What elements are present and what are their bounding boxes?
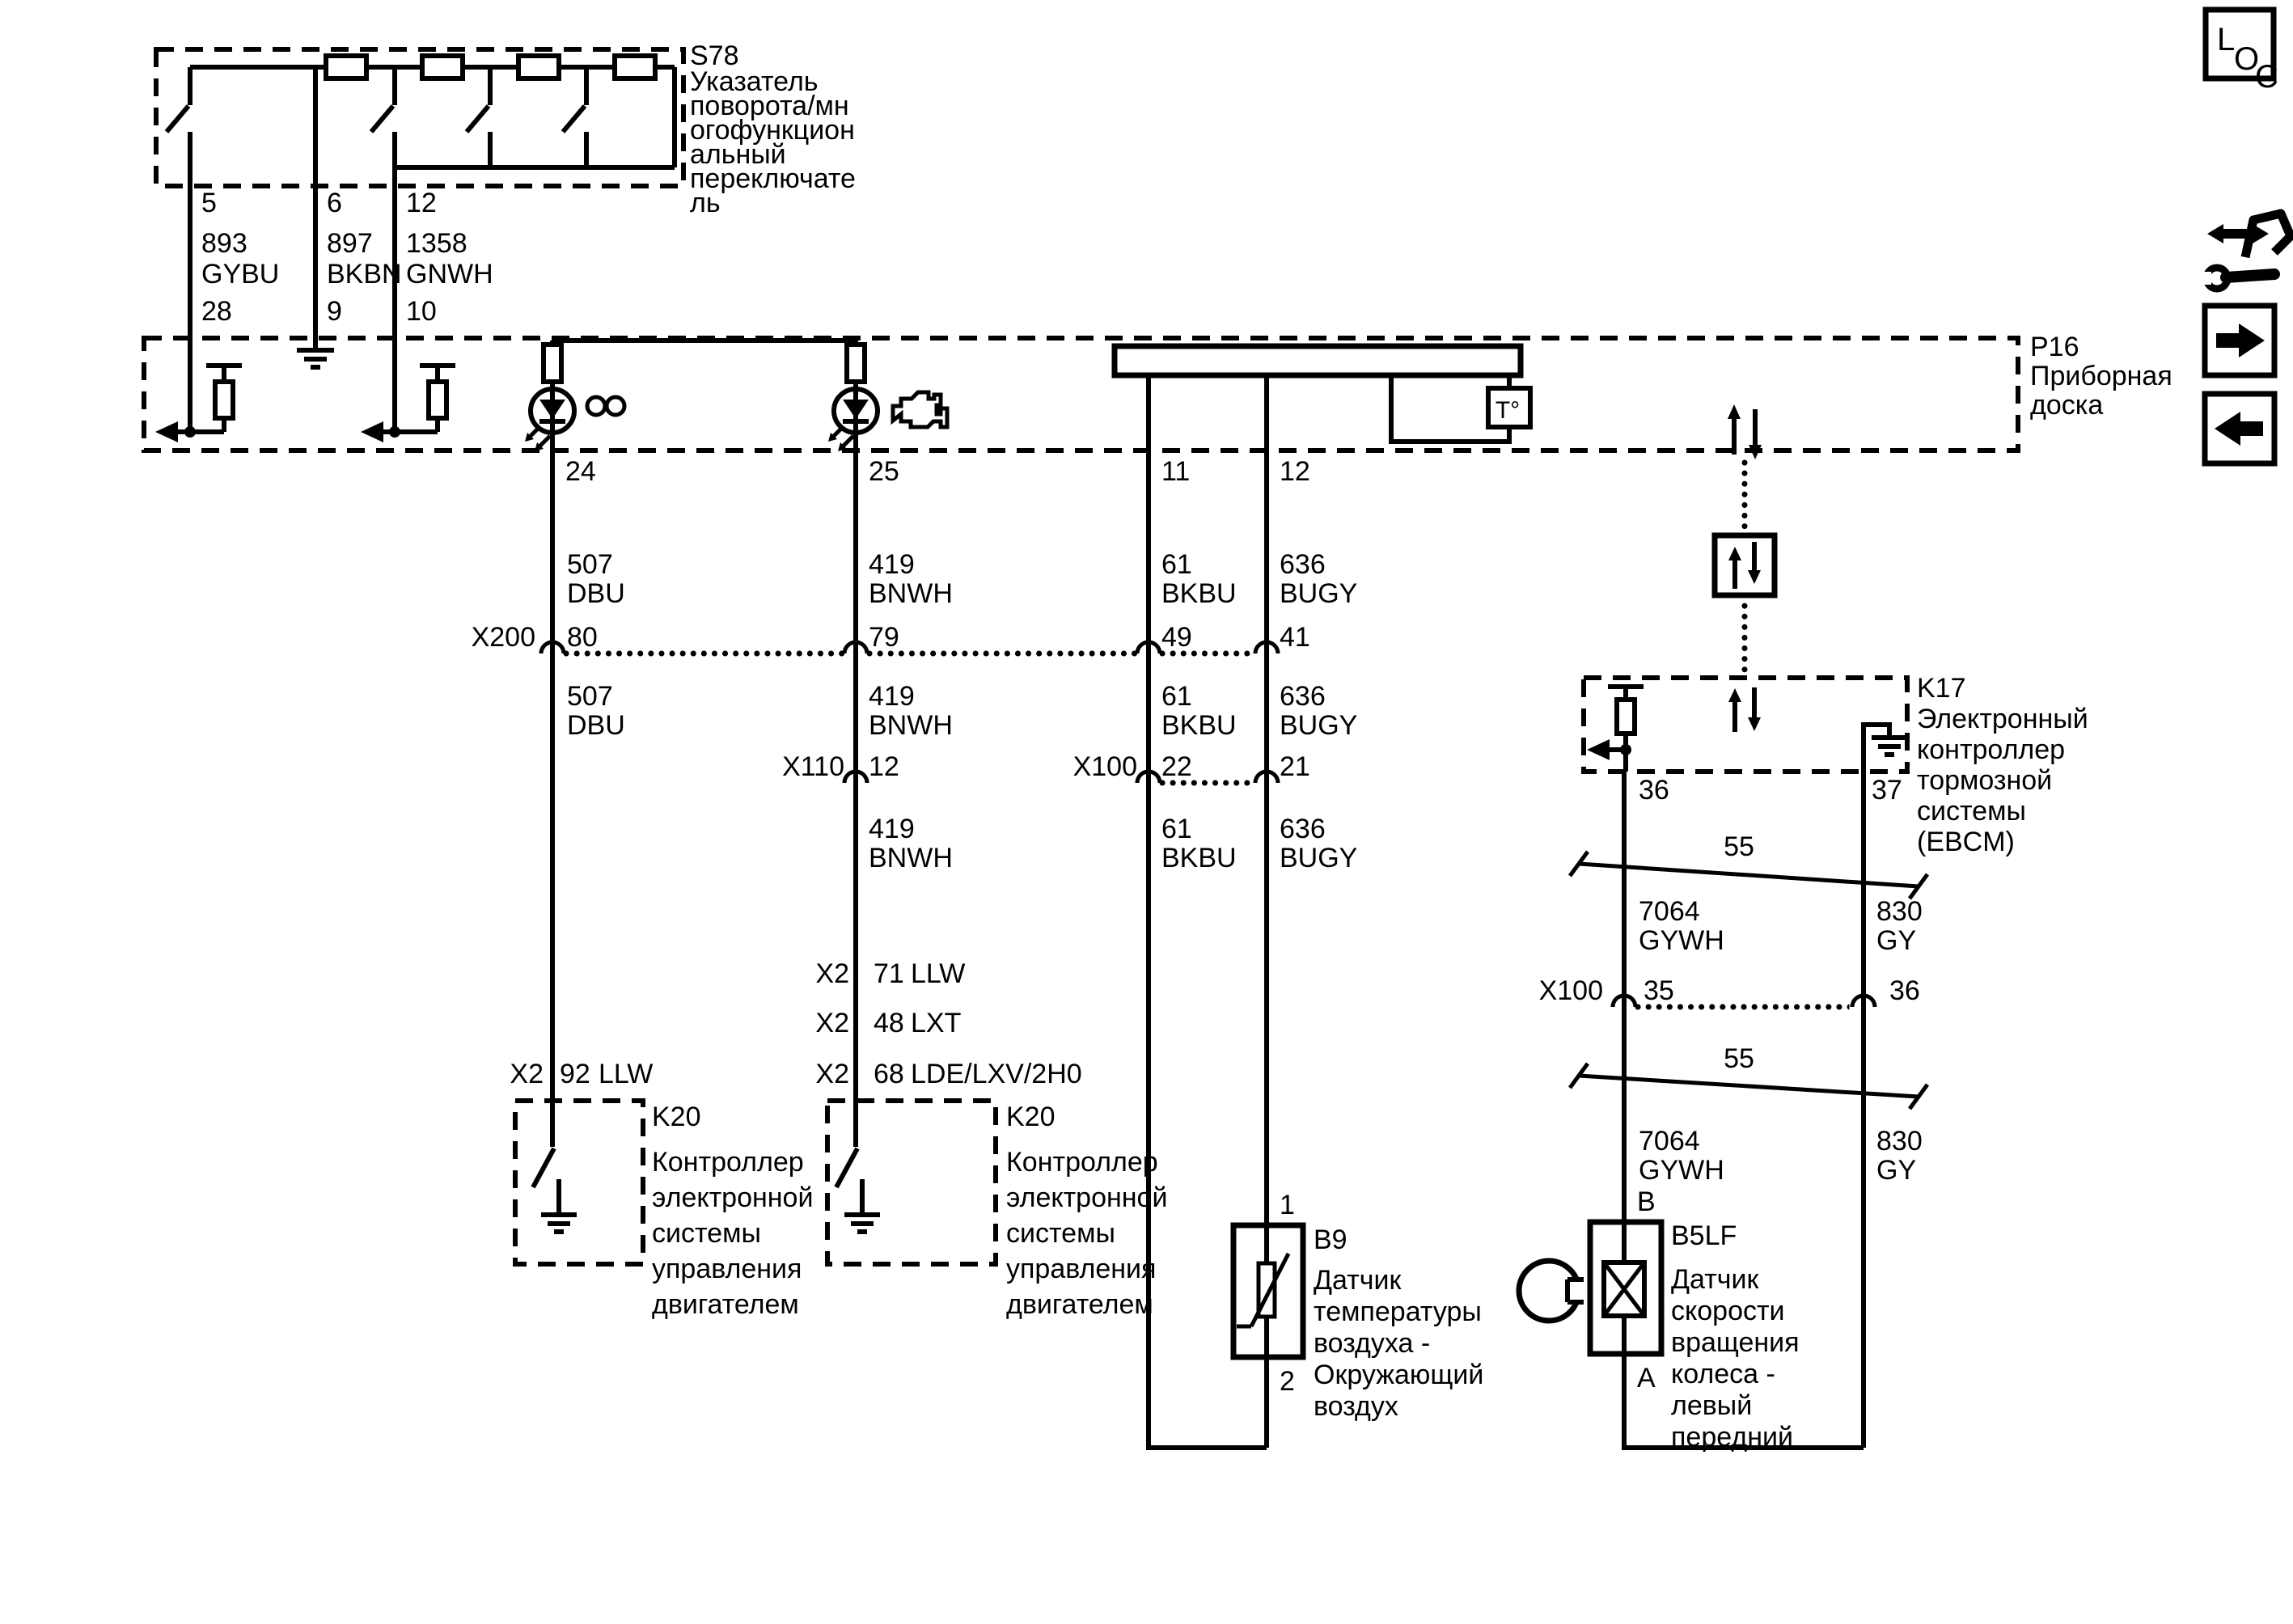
wire-1358-circuit: 1358 — [406, 228, 467, 259]
prev-page-button[interactable] — [2205, 394, 2274, 463]
x2-eng-lde: LDE/LXV/2H0 — [911, 1059, 1082, 1089]
wire-labels-row-c: 419 BNWH 61 BKBU 636 BUGY — [869, 814, 1357, 873]
s78-resistor-3 — [518, 56, 559, 78]
b9-pin-1: 1 — [1280, 1190, 1295, 1220]
p16-res1-cap — [206, 366, 242, 382]
k17-desc-line: Электронный — [1917, 704, 2088, 734]
left-arrow-icon — [2240, 421, 2263, 436]
arrow-down-head — [1748, 717, 1761, 731]
s78-switch2 — [371, 67, 395, 167]
engine-icon — [893, 392, 947, 427]
serial-data-arrows-k17 — [1728, 687, 1761, 732]
x2-pinout-left: X2 92 LLW — [510, 1059, 653, 1089]
k20-id: K20 — [1006, 1102, 1056, 1132]
b5lf-id: B5LF — [1671, 1220, 1737, 1251]
p16-pin-24: 24 — [565, 456, 596, 487]
x100-pin-21: 21 — [1280, 751, 1310, 782]
k20-desc-line: электронной — [1006, 1182, 1167, 1213]
loc-letter-c: C — [2255, 59, 2278, 95]
p16-pin-28: 28 — [201, 296, 232, 327]
x100-pin-36: 36 — [1889, 975, 1920, 1006]
p16-desc-line: доска — [2030, 390, 2103, 421]
k17-pin-36: 36 — [1639, 775, 1669, 806]
x100-connector-engine: X100 22 21 — [1073, 751, 1310, 783]
w636-circuit: 636 — [1280, 681, 1326, 712]
led2-emission — [832, 426, 853, 447]
w830-circuit: 830 — [1876, 896, 1923, 927]
s78-switch3 — [467, 67, 490, 167]
p16-resistor-1 — [215, 382, 233, 418]
k20-desc-line: Контроллер — [652, 1147, 804, 1178]
k20-desc-line: управления — [652, 1254, 802, 1284]
s78-resistor-1 — [326, 56, 366, 78]
p16-pin-10: 10 — [406, 296, 437, 327]
wire-labels-row-b: 507 DBU 419 BNWH 61 BKBU 636 BUGY — [567, 681, 1357, 741]
led2-diode — [843, 400, 869, 419]
w636-circuit: 636 — [1280, 549, 1326, 580]
wire-1358-color: GNWH — [406, 259, 493, 290]
wire-labels-7064-830-lower: 7064 GYWH 830 GY — [1639, 1126, 1923, 1186]
wiring-diagram: S78 Указатель поворота/мн огофункцион ал… — [0, 0, 2293, 1624]
led1-emission — [529, 426, 550, 447]
connector-bumps — [1137, 772, 1278, 783]
w7064-circuit: 7064 — [1639, 896, 1700, 927]
x2-label: X2 — [510, 1059, 544, 1089]
x2-eng-llw: LLW — [911, 958, 965, 989]
x200-connector: X200 80 79 49 41 — [472, 622, 1310, 653]
loc-letter-l: L — [2217, 22, 2235, 57]
junction-dot — [389, 426, 400, 438]
w419-color: BNWH — [869, 710, 953, 741]
b9-desc-line: воздуха - — [1314, 1328, 1430, 1359]
x2-pin-68: 68 — [874, 1059, 904, 1089]
x110-pin-12: 12 — [869, 751, 899, 782]
x200-label: X200 — [472, 622, 535, 653]
k20-desc-line: двигателем — [1006, 1289, 1153, 1320]
b9-desc-line: Датчик — [1314, 1265, 1402, 1296]
shield-label: 55 — [1724, 1043, 1754, 1074]
s78-multifunction-switch: S78 Указатель поворота/мн огофункцион ал… — [156, 40, 856, 218]
p16-desc-line: Приборная — [2030, 361, 2172, 391]
x2-label: X2 — [815, 1008, 849, 1038]
w507-color: DBU — [567, 578, 625, 609]
p16-pin-11: 11 — [1161, 456, 1190, 487]
k17-ebcm: K17 Электронный контроллер тормозной сис… — [1584, 673, 2088, 857]
b5lf-desc-line: передний — [1671, 1422, 1793, 1453]
p16-id: P16 — [2030, 332, 2079, 362]
s78-resistor-2 — [422, 56, 463, 78]
coil-loop — [607, 397, 624, 415]
p16-arrow-left-2 — [361, 421, 383, 442]
coil-loop — [587, 397, 605, 415]
x2-eng-lxt: LXT — [911, 1008, 961, 1038]
corner-icons: L O C — [2200, 10, 2291, 463]
x100-label: X100 — [1073, 751, 1137, 782]
w61-circuit: 61 — [1161, 814, 1192, 844]
x110-connector: X110 12 — [782, 751, 899, 783]
wire-labels-7064-830-upper: 7064 GYWH 830 GY — [1639, 896, 1923, 956]
k17-desc-line: системы — [1917, 796, 2026, 827]
right-arrow-icon — [2216, 333, 2239, 348]
x2-label: X2 — [815, 1059, 849, 1089]
b5lf-desc-line: вращения — [1671, 1327, 1800, 1358]
k20-ground — [541, 1179, 577, 1232]
w636-color: BUGY — [1280, 843, 1357, 873]
b5lf-desc-line: левый — [1671, 1390, 1752, 1421]
w61-circuit: 61 — [1161, 549, 1192, 580]
k17-id: K17 — [1917, 673, 1966, 704]
next-page-button[interactable] — [2205, 306, 2274, 375]
serial-node-box — [1715, 535, 1775, 595]
k20-desc-line: двигателем — [652, 1289, 799, 1320]
b9-desc-line: Окружающий — [1314, 1360, 1483, 1390]
w61-color: BKBU — [1161, 843, 1237, 873]
k20-id: K20 — [652, 1102, 701, 1132]
k20-ecm-right: K20 Контроллер электронной системы управ… — [827, 1101, 1167, 1320]
serial-data-link — [1715, 463, 1775, 676]
w7064-color: GYWH — [1639, 1155, 1724, 1186]
x200-pin-49: 49 — [1161, 622, 1192, 653]
w419-circuit: 419 — [869, 549, 915, 580]
junction-dot — [184, 426, 196, 438]
led1-resistor — [544, 345, 561, 382]
x100-pin-22: 22 — [1161, 751, 1192, 782]
k17-arrow-left — [1587, 739, 1610, 760]
s78-pin-5: 5 — [201, 188, 217, 218]
s78-pin-6: 6 — [327, 188, 342, 218]
k20-ground — [844, 1179, 880, 1232]
x100-pin-35: 35 — [1644, 975, 1674, 1006]
b9-air-temp-sensor: 1 2 B9 Датчик температуры воздуха - Окру… — [1233, 1190, 1483, 1422]
w507-color: DBU — [567, 710, 625, 741]
b9-pin-2: 2 — [1280, 1366, 1295, 1397]
p16-pin-9: 9 — [327, 296, 342, 327]
k17-desc-line: контроллер — [1917, 734, 2065, 765]
x2-pin-71: 71 — [874, 958, 904, 989]
wrench-arrow-icon[interactable] — [2200, 214, 2291, 289]
wire-897-circuit: 897 — [327, 228, 373, 259]
k20-switch-blade — [533, 1148, 554, 1187]
k20-box — [827, 1101, 996, 1264]
w636-color: BUGY — [1280, 710, 1357, 741]
x100-label: X100 — [1539, 975, 1603, 1006]
k17-desc-line: (EBCM) — [1917, 827, 2015, 857]
s78-switch4 — [563, 67, 586, 167]
b9-desc-line: температуры — [1314, 1296, 1482, 1327]
b5lf-desc-line: Датчик — [1671, 1264, 1759, 1295]
k17-desc-line: тормозной — [1917, 765, 2052, 796]
wire-893-color: GYBU — [201, 259, 279, 290]
turn-indicator-led — [525, 340, 574, 451]
w61-color: BKBU — [1161, 710, 1237, 741]
k20-switch-blade — [836, 1148, 857, 1187]
k20-desc-line: Контроллер — [1006, 1147, 1158, 1178]
coil-icon — [587, 397, 624, 415]
w419-color: BNWH — [869, 843, 953, 873]
p16-pin-25: 25 — [869, 456, 899, 487]
w419-circuit: 419 — [869, 681, 915, 712]
x200-pin-41: 41 — [1280, 622, 1310, 653]
x2-eng-llw: LLW — [599, 1059, 653, 1089]
p16-arrow-left-1 — [155, 421, 178, 442]
b5lf-desc-line: скорости — [1671, 1296, 1785, 1326]
w61-circuit: 61 — [1161, 681, 1192, 712]
double-arrow-glyph — [2207, 224, 2269, 243]
w507-circuit: 507 — [567, 681, 613, 712]
p16-resistor-2 — [429, 382, 446, 418]
k17-resistor — [1617, 700, 1635, 734]
led2-resistor — [847, 345, 865, 382]
w830-color: GY — [1876, 1155, 1916, 1186]
engine-indicator-led — [828, 340, 878, 451]
wire-897-color: BKBN — [327, 259, 402, 290]
w636-color: BUGY — [1280, 578, 1357, 609]
w61-color: BKBU — [1161, 578, 1237, 609]
k17-ground — [1864, 725, 1907, 772]
k20-desc-line: системы — [652, 1218, 761, 1249]
k20-desc-line: системы — [1006, 1218, 1115, 1249]
x2-pin-48: 48 — [874, 1008, 904, 1038]
b5lf-wheel-speed-sensor: B A B5LF Датчик скорости вращения колеса… — [1519, 1186, 1800, 1453]
arrow-up-head — [1728, 688, 1741, 702]
k17-pin-37: 37 — [1872, 775, 1902, 806]
x200-pin-80: 80 — [567, 622, 598, 653]
k20-ecm-left: K20 Контроллер электронной системы управ… — [515, 1101, 813, 1320]
b9-desc-line: воздух — [1314, 1391, 1398, 1422]
p16-res2-cap — [420, 366, 455, 382]
shield-label: 55 — [1724, 831, 1754, 862]
ground-icon — [297, 350, 334, 367]
b5lf-pin-b: B — [1637, 1186, 1656, 1217]
s78-resistor-4 — [615, 56, 655, 78]
p16-instrument-cluster: T° P16 Приборная доска 24 25 11 12 — [144, 332, 2172, 487]
w636-circuit: 636 — [1280, 814, 1326, 844]
x2-pin-92: 92 — [560, 1059, 590, 1089]
w419-circuit: 419 — [869, 814, 915, 844]
s78-switch1-blade — [167, 106, 188, 132]
w7064-color: GYWH — [1639, 925, 1724, 956]
x2-label: X2 — [815, 958, 849, 989]
feed-wires: 893 GYBU 897 BKBN 1358 GNWH 28 9 10 — [190, 67, 493, 432]
b9-id: B9 — [1314, 1224, 1347, 1255]
w830-color: GY — [1876, 925, 1916, 956]
wiring-diagram-page: S78 Указатель поворота/мн огофункцион ал… — [0, 0, 2293, 1624]
w7064-circuit: 7064 — [1639, 1126, 1700, 1157]
w419-color: BNWH — [869, 578, 953, 609]
s78-pin-12: 12 — [406, 188, 437, 218]
arrow-up-head — [1728, 404, 1741, 419]
k20-desc-line: управления — [1006, 1254, 1156, 1284]
loc-box[interactable]: L O C — [2206, 10, 2278, 95]
b5lf-pin-a: A — [1637, 1363, 1656, 1394]
w830-circuit: 830 — [1876, 1126, 1923, 1157]
wire-893-circuit: 893 — [201, 228, 247, 259]
hook-glyph — [2245, 214, 2291, 257]
b5lf-desc-line: колеса - — [1671, 1359, 1775, 1389]
k20-desc-line: электронной — [652, 1182, 813, 1213]
x110-label: X110 — [782, 751, 844, 782]
wrench-jaw-gap — [2200, 272, 2211, 285]
wrench-handle — [2226, 274, 2274, 277]
w507-circuit: 507 — [567, 549, 613, 580]
p16-pin-12: 12 — [1280, 456, 1310, 487]
tone-ring-icon — [1519, 1261, 1587, 1321]
led1-diode — [539, 400, 565, 419]
p16-bar — [1115, 346, 1521, 375]
x200-pin-79: 79 — [869, 622, 899, 653]
wire-labels-row-a: 507 DBU 419 BNWH 61 BKBU 636 BUGY — [567, 549, 1357, 609]
temp-label: T° — [1496, 397, 1520, 424]
s78-desc-line: ль — [690, 188, 721, 218]
